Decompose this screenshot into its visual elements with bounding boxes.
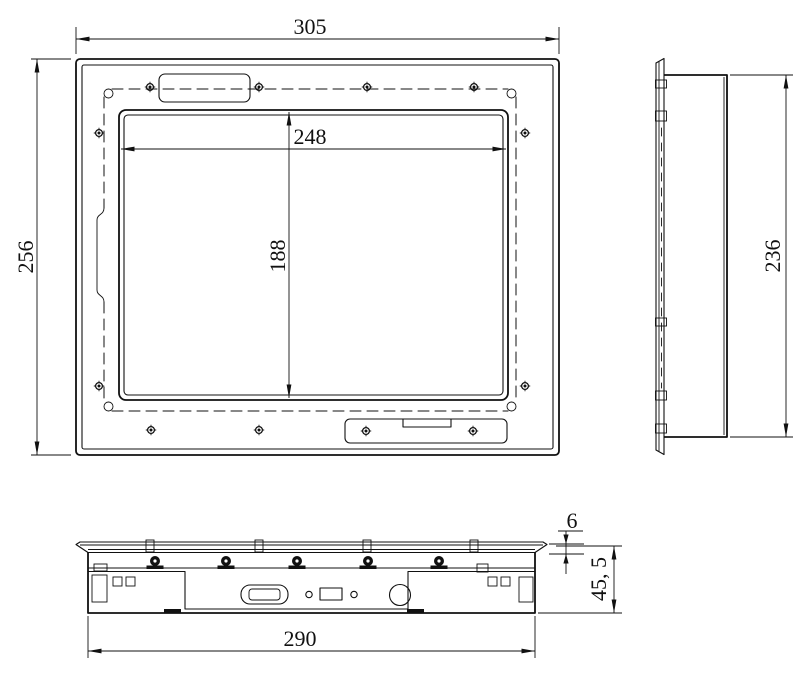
dimension-label-bottom-width: 290 [284, 626, 317, 651]
usb-port [320, 588, 342, 600]
dimension-bottom-width: 290 [88, 616, 535, 658]
front-view: 305 256 248 188 [13, 14, 559, 455]
vent-square [501, 577, 510, 586]
screw-head [292, 556, 302, 566]
indicator-hole [351, 591, 357, 597]
bottom-screws [147, 556, 448, 569]
right-bracket [519, 577, 533, 602]
bottom-bezel-strip [76, 540, 547, 553]
bezel-right-chamfer [535, 542, 547, 553]
dimension-label-display-height: 188 [265, 240, 290, 273]
corner-arc [507, 89, 516, 98]
drawing-page: 305 256 248 188 [0, 0, 811, 688]
screw-hole [145, 82, 155, 92]
dimension-label-front-height: 256 [13, 241, 38, 274]
technical-drawing: 305 256 248 188 [0, 0, 811, 688]
panel-notch [403, 419, 451, 427]
dimension-front-height: 256 [13, 59, 71, 455]
side-view: 236 [656, 59, 794, 455]
side-rear-enclosure [664, 75, 727, 437]
bottom-view: 290 45, 5 6 [76, 508, 622, 658]
screw-head [221, 556, 231, 566]
bezel-left-chamfer [76, 542, 88, 553]
bezel-clips [656, 80, 667, 433]
screw-head [434, 556, 444, 566]
screw-head [363, 556, 373, 566]
dimension-label-bottom-depth: 45, 5 [586, 557, 611, 601]
front-outer-frame [76, 59, 559, 455]
dimension-display-width: 248 [121, 124, 506, 149]
corner-arc [507, 402, 516, 411]
screw-hole [520, 128, 530, 138]
dimension-label-display-width: 248 [294, 124, 327, 149]
side-bezel-profile [656, 59, 667, 455]
dimension-bezel-depth: 6 [549, 508, 584, 574]
screw-hole [468, 426, 478, 436]
dimension-label-side-height: 236 [760, 240, 785, 273]
vent-square [488, 577, 497, 586]
indicator-hole [306, 591, 312, 597]
screw-head [150, 556, 160, 566]
io-recess [185, 572, 408, 610]
corner-arc [104, 402, 113, 411]
screw-hole [361, 426, 371, 436]
screw-hole [94, 128, 104, 138]
power-jack [390, 585, 411, 606]
arrow-up [563, 554, 568, 564]
arrow-down [563, 535, 568, 545]
vent-square [113, 577, 122, 586]
foot-tab [407, 609, 424, 613]
dimension-label-front-width: 305 [294, 14, 327, 39]
screw-hole [254, 82, 264, 92]
front-inner-frame [82, 65, 553, 449]
dimension-label-bezel-depth: 6 [567, 508, 578, 533]
foot-tab [164, 609, 181, 613]
display-area-inner [124, 115, 503, 395]
corner-arc [104, 89, 113, 98]
screw-hole [254, 425, 264, 435]
dimension-bottom-depth: 45, 5 [538, 546, 622, 613]
screw-hole [469, 82, 479, 92]
screw-hole [362, 82, 372, 92]
top-bracket [159, 74, 250, 102]
dimension-side-height: 236 [730, 75, 793, 437]
vga-connector [241, 585, 288, 604]
vent-square [126, 577, 135, 586]
screw-hole [94, 381, 104, 391]
dimension-display-height: 188 [265, 112, 290, 398]
left-notch [97, 208, 104, 302]
display-area-outer [119, 110, 508, 400]
vga-connector-inner [249, 589, 280, 600]
screw-hole [520, 381, 530, 391]
io-connectors [241, 585, 411, 606]
left-bracket [92, 575, 107, 602]
dimension-front-width: 305 [76, 14, 559, 54]
screw-hole [146, 425, 156, 435]
